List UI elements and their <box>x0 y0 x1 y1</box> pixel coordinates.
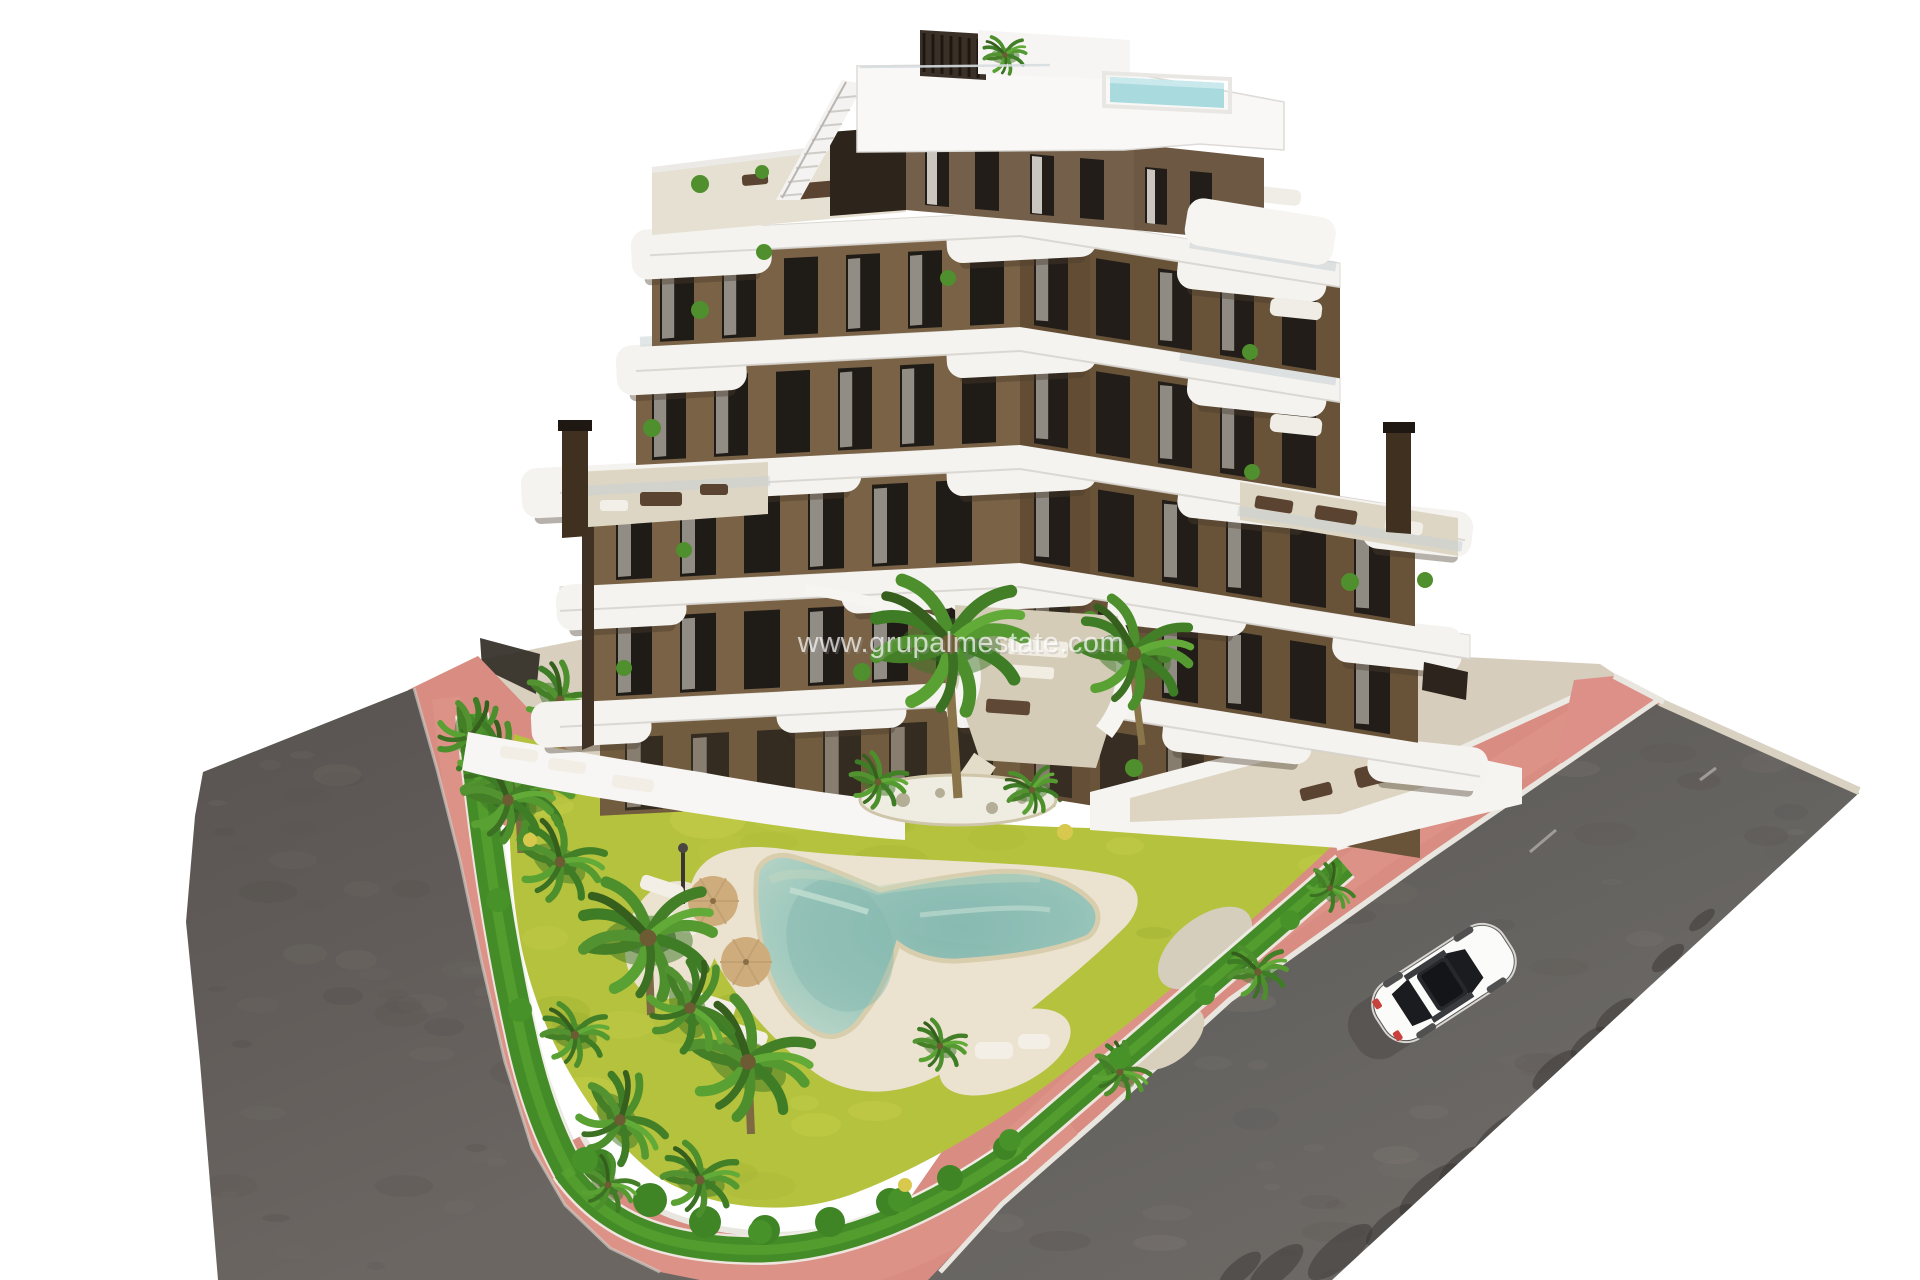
svg-text:www.grupalmestate.com: www.grupalmestate.com <box>797 627 1124 659</box>
